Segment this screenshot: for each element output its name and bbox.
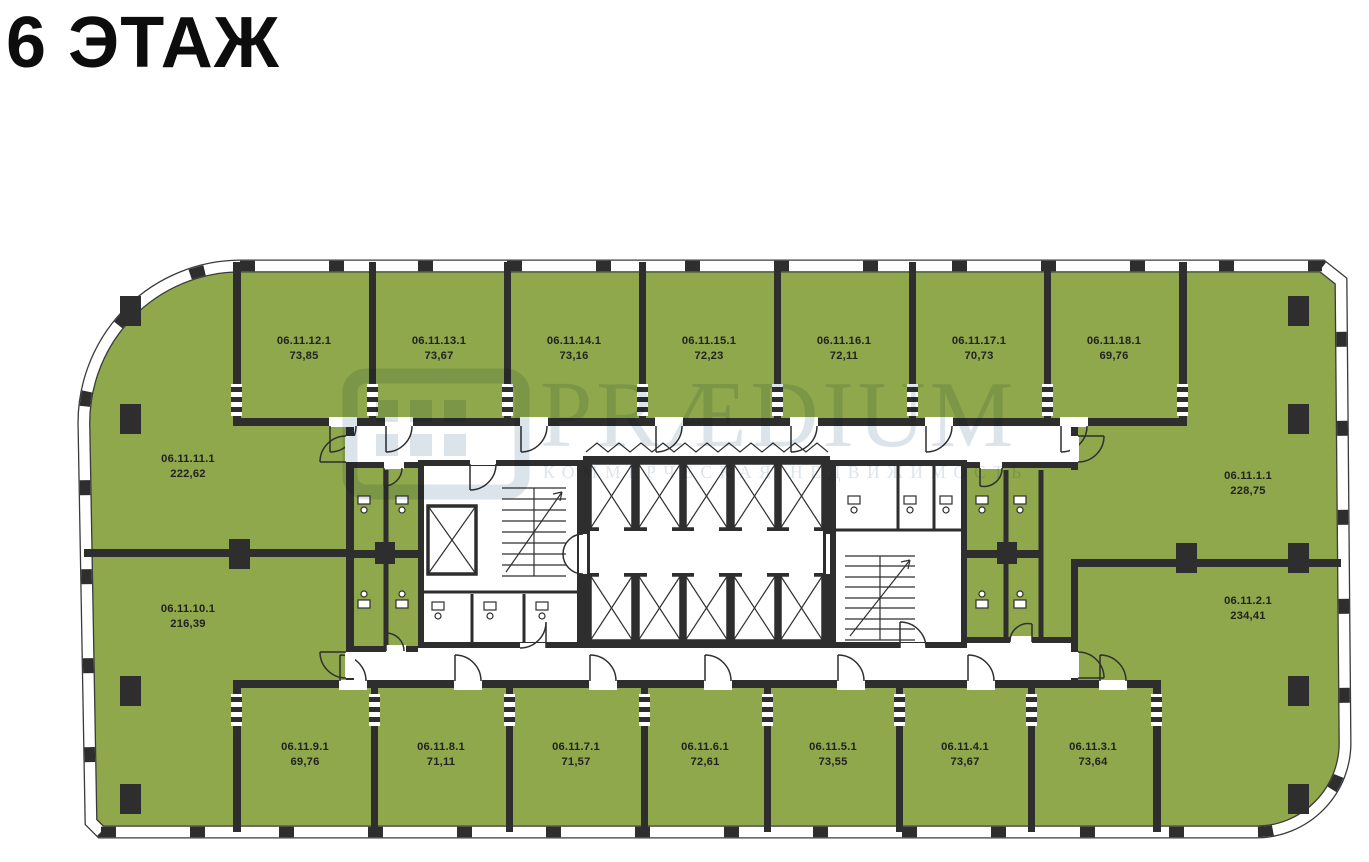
room-area-label: 228,75 bbox=[1230, 485, 1265, 497]
room-area-label: 73,55 bbox=[819, 756, 848, 768]
room-area-label: 72,61 bbox=[691, 756, 720, 768]
room-id-label: 06.11.10.1 bbox=[161, 603, 215, 615]
room-area-label: 73,85 bbox=[290, 350, 319, 362]
room-id-label: 06.11.8.1 bbox=[417, 741, 465, 753]
room-area-label: 216,39 bbox=[170, 618, 205, 630]
room-id-label: 06.11.12.1 bbox=[277, 335, 331, 347]
room-area-label: 73,67 bbox=[951, 756, 980, 768]
floor-plan-canvas: 06.11.12.1 73,85 06.11.13.1 73,67 06.11.… bbox=[0, 0, 1369, 862]
room-area-label: 73,16 bbox=[560, 350, 589, 362]
room-id-label: 06.11.9.1 bbox=[281, 741, 329, 753]
elevator-left bbox=[428, 506, 476, 574]
room-area-label: 71,57 bbox=[562, 756, 591, 768]
watermark-subtitle: КОММЕРЧЕСКАЯ НЕДВИЖИМОСТЬ bbox=[543, 462, 1029, 482]
room-area-label: 73,67 bbox=[425, 350, 454, 362]
room-area-label: 73,64 bbox=[1079, 756, 1109, 768]
room-id-label: 06.11.17.1 bbox=[952, 335, 1006, 347]
room-id-label: 06.11.3.1 bbox=[1069, 741, 1117, 753]
room-area-label: 234,41 bbox=[1230, 610, 1265, 622]
room-id-label: 06.11.2.1 bbox=[1224, 595, 1272, 607]
room-id-label: 06.11.16.1 bbox=[817, 335, 871, 347]
room-id-label: 06.11.18.1 bbox=[1087, 335, 1141, 347]
room-area-label: 72,11 bbox=[830, 350, 858, 362]
room-id-label: 06.11.13.1 bbox=[412, 335, 466, 347]
room-area-label: 70,73 bbox=[965, 350, 994, 362]
elevator-shafts-bottom bbox=[590, 575, 823, 641]
room-id-label: 06.11.11.1 bbox=[161, 453, 215, 465]
page-title: 6 ЭТАЖ bbox=[6, 3, 280, 83]
room-id-label: 06.11.4.1 bbox=[941, 741, 989, 753]
room-area-label: 69,76 bbox=[291, 756, 320, 768]
watermark-brand: PRÆDIUM bbox=[540, 363, 1017, 467]
stairwell-right bbox=[833, 463, 964, 651]
room-area-label: 71,11 bbox=[427, 756, 455, 768]
room-area-label: 69,76 bbox=[1100, 350, 1129, 362]
room-id-label: 06.11.15.1 bbox=[682, 335, 736, 347]
room-id-label: 06.11.7.1 bbox=[552, 741, 600, 753]
room-id-label: 06.11.5.1 bbox=[809, 741, 857, 753]
room-area-label: 72,23 bbox=[695, 350, 724, 362]
room-id-label: 06.11.14.1 bbox=[547, 335, 601, 347]
room-area-label: 222,62 bbox=[170, 468, 205, 480]
room-id-label: 06.11.6.1 bbox=[681, 741, 729, 753]
room-id-label: 06.11.1.1 bbox=[1224, 470, 1272, 482]
